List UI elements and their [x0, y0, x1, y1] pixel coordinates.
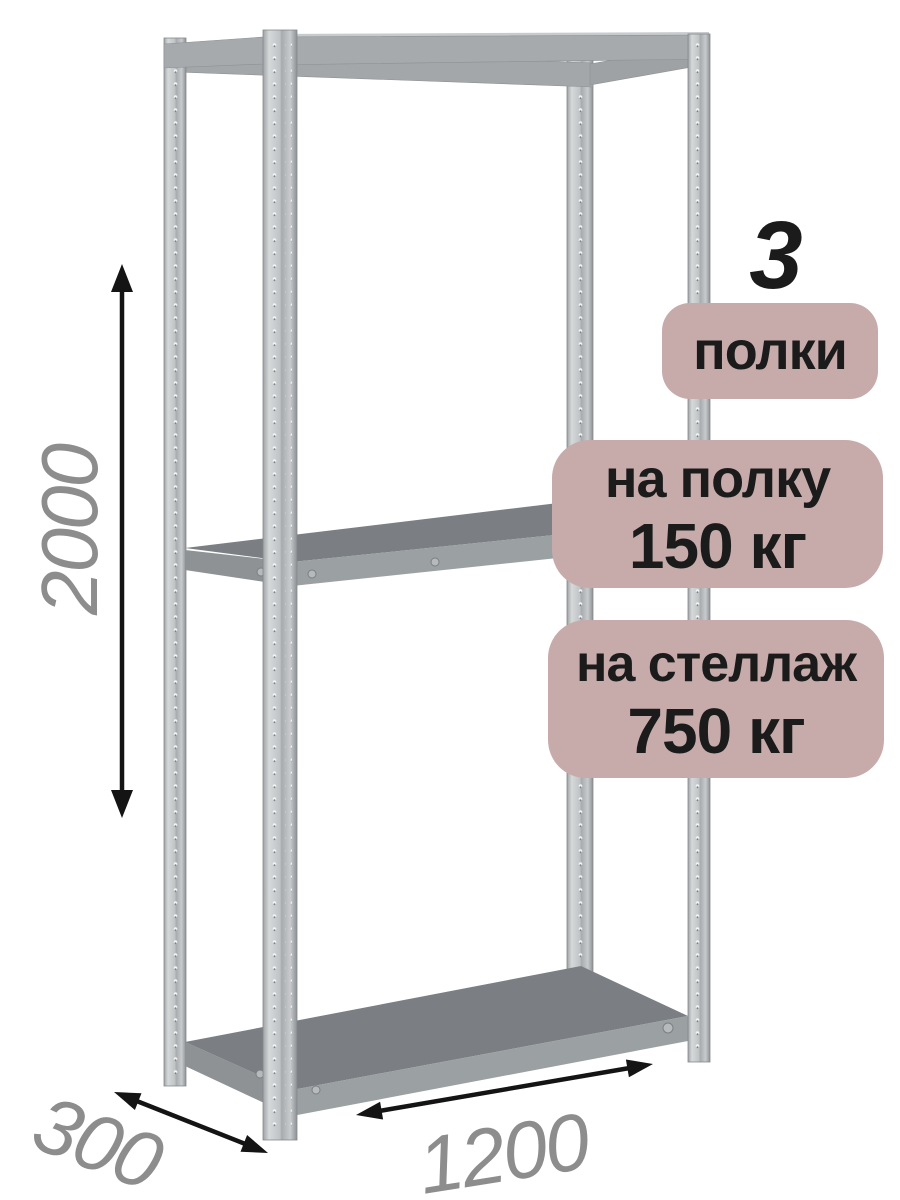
shelf-load-badge: на полку 150 кг — [552, 440, 883, 588]
rack-load-value: 750 кг — [627, 696, 804, 766]
shelf-count-label: полки — [693, 319, 847, 383]
height-dimension-label: 2000 — [30, 380, 110, 680]
rack-post-back-left — [164, 38, 186, 1086]
shelf-count-badge: полки — [662, 303, 878, 399]
rack-post-front-left — [263, 30, 297, 1140]
product-image: 2000 300 1200 3 полки на полку 150 кг на… — [0, 0, 900, 1200]
height-dimension-arrow — [111, 264, 133, 818]
shelf-count-number: 3 — [716, 206, 836, 306]
shelf-load-value: 150 кг — [629, 511, 806, 581]
rack-load-badge: на стеллаж 750 кг — [548, 620, 884, 778]
shelving-rack-illustration — [0, 0, 900, 1200]
rack-beam-top-front — [264, 32, 709, 65]
rack-load-label: на стеллаж — [576, 632, 856, 696]
rack-shelf-bottom — [185, 966, 688, 1116]
shelf-load-label: на полку — [605, 447, 830, 511]
